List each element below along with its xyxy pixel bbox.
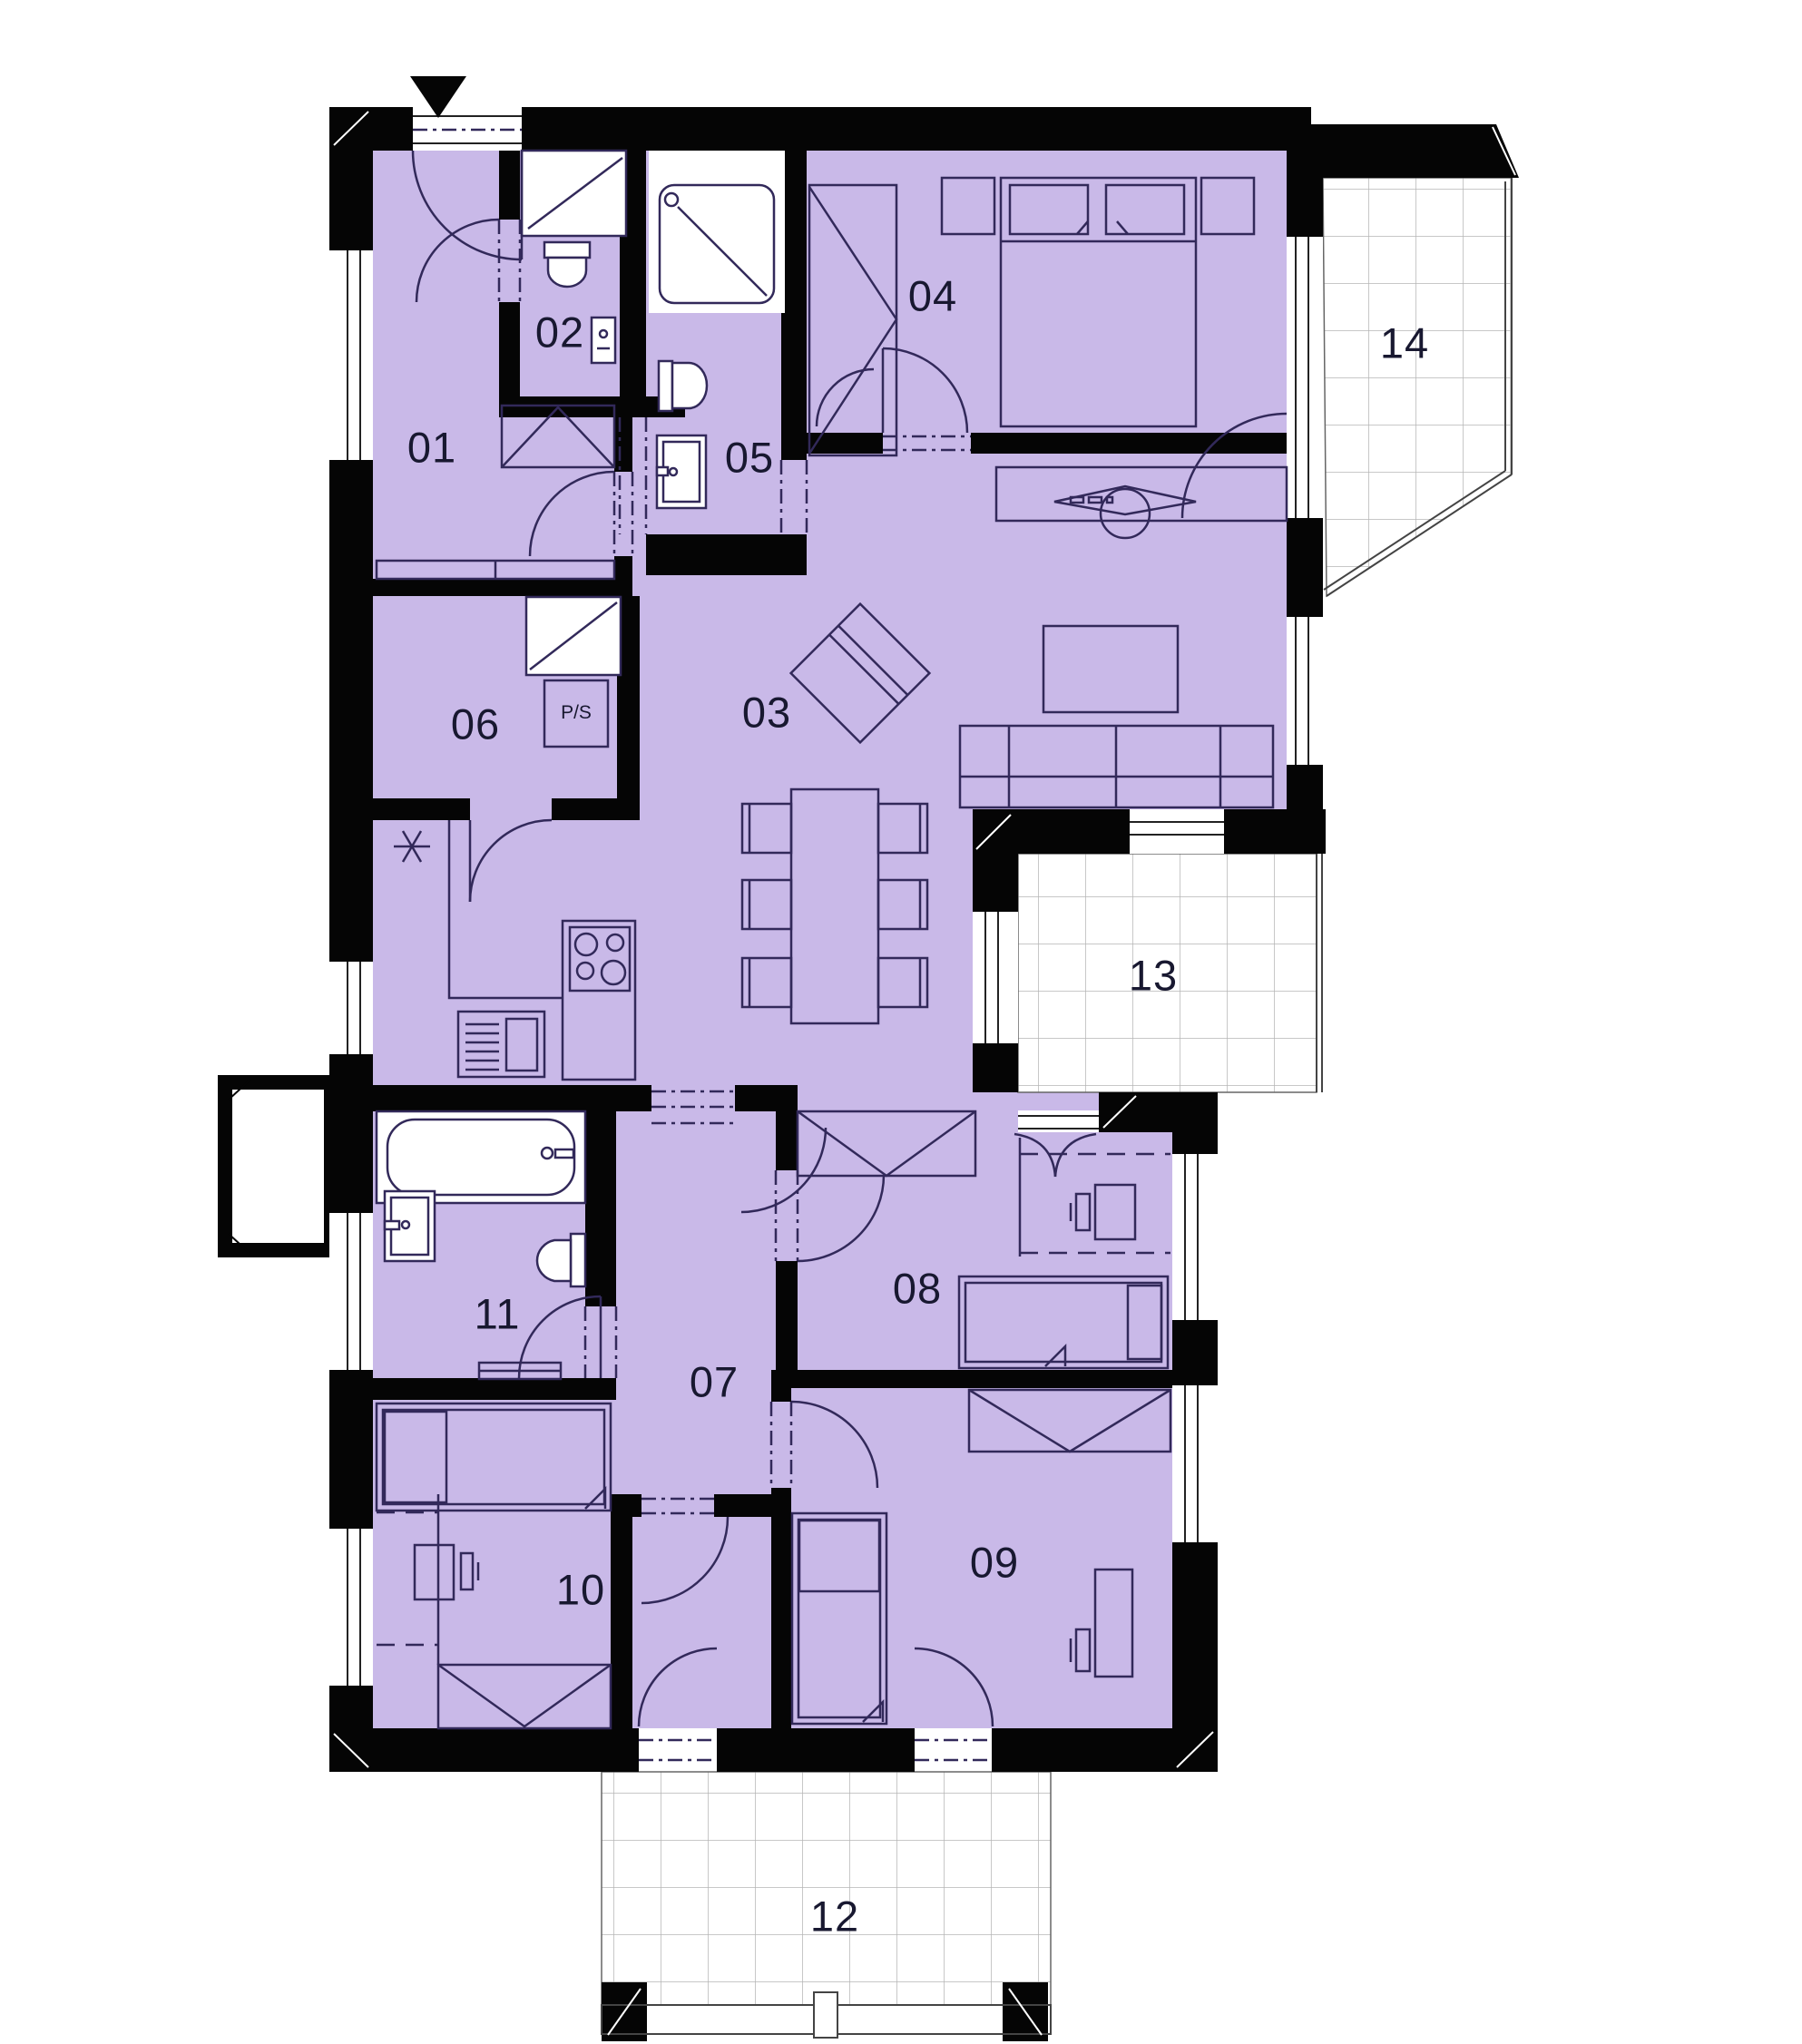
room-label-12: 12	[810, 1892, 859, 1941]
room-label-07: 07	[690, 1357, 739, 1407]
closet-niche-02	[522, 151, 626, 236]
floor-plan: 01 02 03 04 05 06 07 08 09 10 11 12 13 1…	[0, 0, 1802, 2044]
toilet-05	[659, 361, 707, 411]
exterior-shaft	[225, 1080, 331, 1254]
toilet-02	[544, 242, 590, 287]
ps-label: P/S	[561, 702, 592, 724]
room-label-10: 10	[556, 1565, 605, 1615]
washbasin-02	[592, 318, 615, 363]
shower-05	[649, 151, 785, 313]
room-label-06: 06	[451, 699, 500, 749]
washbasin-11	[385, 1191, 435, 1261]
room-label-13: 13	[1129, 951, 1178, 1001]
duct-shaft-06	[526, 597, 621, 675]
room-label-08: 08	[893, 1264, 942, 1314]
room-label-14: 14	[1380, 318, 1429, 368]
floor-plan-drawing	[0, 0, 1802, 2044]
room-label-03: 03	[742, 688, 791, 738]
room-label-01: 01	[407, 423, 456, 473]
washbasin-05	[657, 435, 706, 508]
room-label-05: 05	[725, 433, 774, 483]
room-label-11: 11	[475, 1289, 521, 1339]
room-label-04: 04	[908, 271, 957, 321]
room-label-09: 09	[970, 1538, 1019, 1588]
balcony-14-top-wall	[1302, 124, 1519, 178]
room-label-02: 02	[535, 308, 584, 357]
bathtub-11	[377, 1111, 585, 1203]
